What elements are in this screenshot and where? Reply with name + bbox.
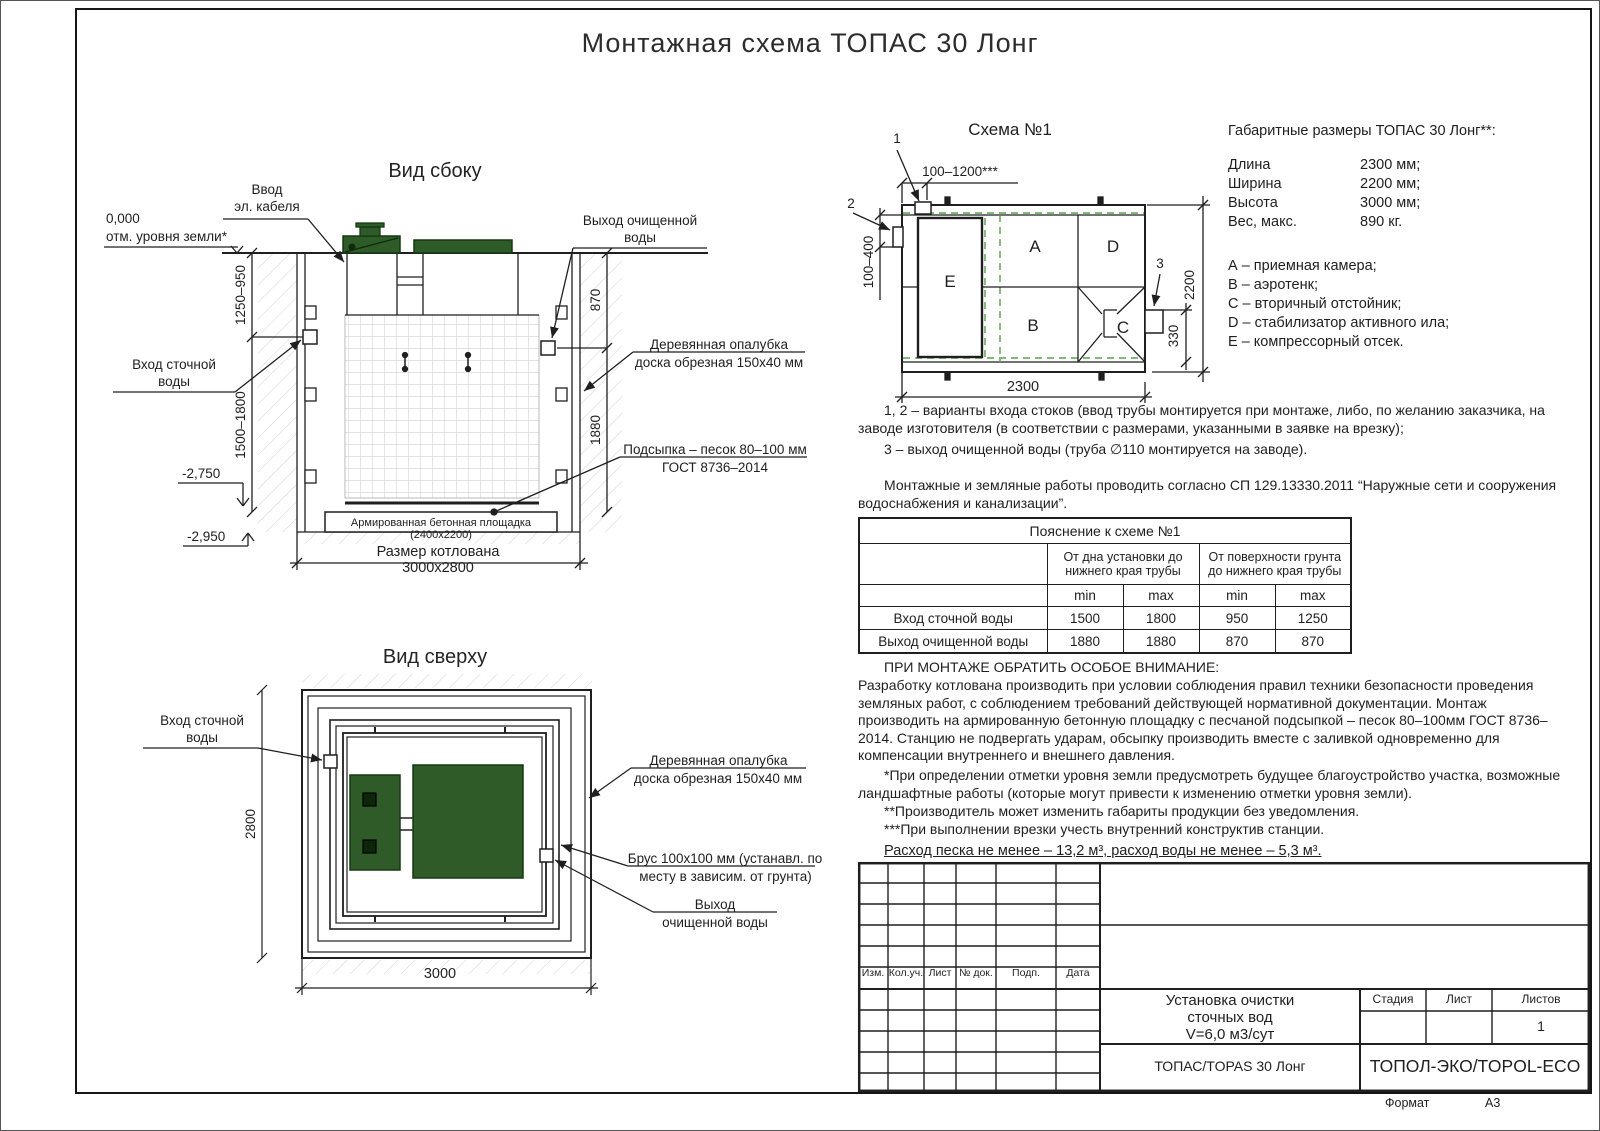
scheme-dim-330: 330: [1166, 318, 1182, 354]
side-view-title: Вид сбоку: [350, 160, 520, 183]
stamp-col-ndok: № док.: [956, 967, 996, 979]
stamp-company: ТОПОЛ-ЭКО/TOPOL-ECO: [1360, 1056, 1590, 1077]
level-2750: -2,750: [182, 466, 242, 482]
dim-1880: 1880: [588, 405, 604, 455]
scheme-dim-2300: 2300: [983, 379, 1063, 395]
row-value: 1250: [1275, 607, 1351, 630]
stamp-model: ТОПАС/TOPAS 30 Лонг: [1100, 1058, 1360, 1074]
row-value: 1880: [1123, 630, 1199, 654]
dim-row-value: 2200 мм;: [1360, 176, 1490, 193]
row-value: 870: [1275, 630, 1351, 654]
table-title: Пояснение к схеме №1: [859, 518, 1351, 544]
chamber-c-label: C: [1110, 318, 1136, 338]
scheme-dim-100-1200: 100–1200***: [900, 164, 1020, 180]
dim-870: 870: [588, 280, 604, 320]
sewage-inlet-label: Вход сточной воды: [113, 356, 235, 390]
drawing-sheet: Монтажная схема ТОПАС 30 Лонг: [0, 0, 1600, 1131]
explanation-table: Пояснение к схеме №1 От дна установки до…: [858, 517, 1352, 654]
chamber-d-label: D: [1098, 237, 1128, 257]
dim-1500-1800: 1500–1800: [233, 385, 249, 465]
chamber-a-label: A: [1020, 237, 1050, 257]
format-value: А3: [1485, 1096, 1525, 1110]
stamp-stage-label: Стадия: [1360, 992, 1426, 1006]
table-group-bottom: От дна установки до нижнего края трубы: [1047, 544, 1199, 585]
legend-item: В – аэротенк;: [1228, 277, 1598, 294]
attention-body: Разработку котлована производить при усл…: [858, 677, 1572, 765]
beam-label-line2: месту в зависим. от грунта): [638, 868, 813, 885]
slab-label: Армированная бетонная площадка (2400х220…: [327, 517, 555, 541]
note-works: Монтажные и земляные работы проводить со…: [858, 477, 1570, 512]
footnote-3: ***При выполнении врезки учесть внутренн…: [858, 821, 1574, 839]
scheme-dim-2200: 2200: [1182, 262, 1198, 308]
stamp-col-list: Лист: [924, 967, 956, 979]
chamber-b-label: B: [1018, 316, 1048, 336]
page-title: Монтажная схема ТОПАС 30 Лонг: [500, 28, 1120, 59]
table-max-header: max: [1123, 585, 1199, 607]
zero-level-sub: отм. уровня земли*: [106, 229, 246, 245]
dim-3000: 3000: [395, 966, 485, 982]
table-min-header: min: [1199, 585, 1275, 607]
cable-entry-label: Ввод эл. кабеля: [225, 181, 309, 215]
legend-item: D – стабилизатор активного ила;: [1228, 315, 1598, 332]
footnote-1: *При определении отметки уровня земли пр…: [858, 767, 1574, 802]
scheme-marker-3: 3: [1151, 256, 1169, 272]
row-label: Вход сточной воды: [859, 607, 1047, 630]
top-outlet-label-line2: очищенной воды: [643, 914, 787, 931]
formwork-label-line1: Деревянная опалубка: [633, 336, 805, 353]
scheme-title: Схема №1: [945, 120, 1075, 140]
table-row: Выход очищенной воды 1880 1880 870 870: [859, 630, 1351, 654]
dim-row-value: 2300 мм;: [1360, 157, 1490, 174]
row-label: Выход очищенной воды: [859, 630, 1047, 654]
stamp-sheet-label: Лист: [1426, 992, 1492, 1006]
top-sewage-inlet-label: Вход сточной воды: [143, 712, 261, 746]
dimensions-panel-title: Габаритные размеры ТОПАС 30 Лонг**:: [1228, 123, 1598, 140]
stamp-sheets-value: 1: [1492, 1018, 1590, 1034]
top-outlet-label-line1: Выход: [653, 896, 777, 913]
dim-2800: 2800: [243, 799, 259, 849]
attention-heading: ПРИ МОНТАЖЕ ОБРАТИТЬ ОСОБОЕ ВНИМАНИЕ:: [884, 659, 1424, 677]
format-label: Формат: [1385, 1096, 1455, 1110]
row-value: 870: [1199, 630, 1275, 654]
clean-water-outlet-label: Выход очищенной воды: [573, 212, 707, 246]
table-min-header: min: [1047, 585, 1123, 607]
stamp-sheets-label: Листов: [1492, 992, 1590, 1006]
table-row: Вход сточной воды 1500 1800 950 1250: [859, 607, 1351, 630]
top-view-title: Вид сверху: [350, 646, 520, 669]
dim-row-value: 890 кг.: [1360, 214, 1490, 231]
scheme-marker-1: 1: [888, 131, 906, 147]
bedding-label-line1: Подсыпка – песок 80–100 мм: [620, 441, 810, 458]
row-value: 1880: [1047, 630, 1123, 654]
row-value: 1500: [1047, 607, 1123, 630]
bedding-label-line2: ГОСТ 8736–2014: [640, 459, 790, 476]
pit-size-label: Размер котлована 3000х2800: [348, 544, 528, 576]
zero-level-mark: 0,000: [106, 211, 186, 227]
dim-row-label: Вес, макс.: [1228, 214, 1358, 231]
table-empty-cell: [859, 585, 1047, 607]
row-value: 1800: [1123, 607, 1199, 630]
note-inlet-variants: 1, 2 – варианты входа стоков (ввод трубы…: [858, 402, 1570, 437]
chamber-e-label: E: [935, 272, 965, 292]
legend-item: Е – компрессорный отсек.: [1228, 334, 1598, 351]
stamp-col-data: Дата: [1056, 967, 1100, 979]
consumption-note: Расход песка не менее – 13,2 м³, расход …: [884, 843, 1524, 861]
top-formwork-label-line2: доска обрезная 150х40 мм: [623, 770, 813, 787]
table-group-surface: От поверхности грунта до нижнего края тр…: [1199, 544, 1351, 585]
scheme-dim-100-400: 100–400: [861, 230, 877, 294]
dim-row-label: Ширина: [1228, 176, 1358, 193]
table-max-header: max: [1275, 585, 1351, 607]
stamp-object-title: Установка очистки сточных вод V=6,0 м3/с…: [1100, 992, 1360, 1043]
legend-item: А – приемная камера;: [1228, 258, 1598, 275]
stamp-col-koluch: Кол.уч.: [888, 967, 924, 979]
footnote-2: **Производитель может изменить габариты …: [858, 803, 1574, 821]
table-corner-cell: [859, 544, 1047, 585]
dim-1250-950: 1250–950: [233, 260, 249, 330]
top-formwork-label-line1: Деревянная опалубка: [631, 752, 806, 769]
formwork-label-line2: доска обрезная 150х40 мм: [623, 354, 815, 371]
row-value: 950: [1199, 607, 1275, 630]
legend-item: С – вторичный отстойник;: [1228, 296, 1598, 313]
dim-row-label: Высота: [1228, 195, 1358, 212]
top-view-drawing: [110, 630, 830, 1010]
stamp-col-podp: Подп.: [996, 967, 1056, 979]
stamp-col-izm: Изм.: [858, 967, 888, 979]
dim-row-label: Длина: [1228, 157, 1358, 174]
level-2950: -2,950: [187, 529, 247, 545]
dim-row-value: 3000 мм;: [1360, 195, 1490, 212]
note-outlet: 3 – выход очищенной воды (труба ∅110 мон…: [858, 441, 1570, 459]
beam-label-line1: Брус 100х100 мм (устанавл. по: [626, 850, 824, 867]
scheme-marker-2: 2: [842, 196, 860, 212]
